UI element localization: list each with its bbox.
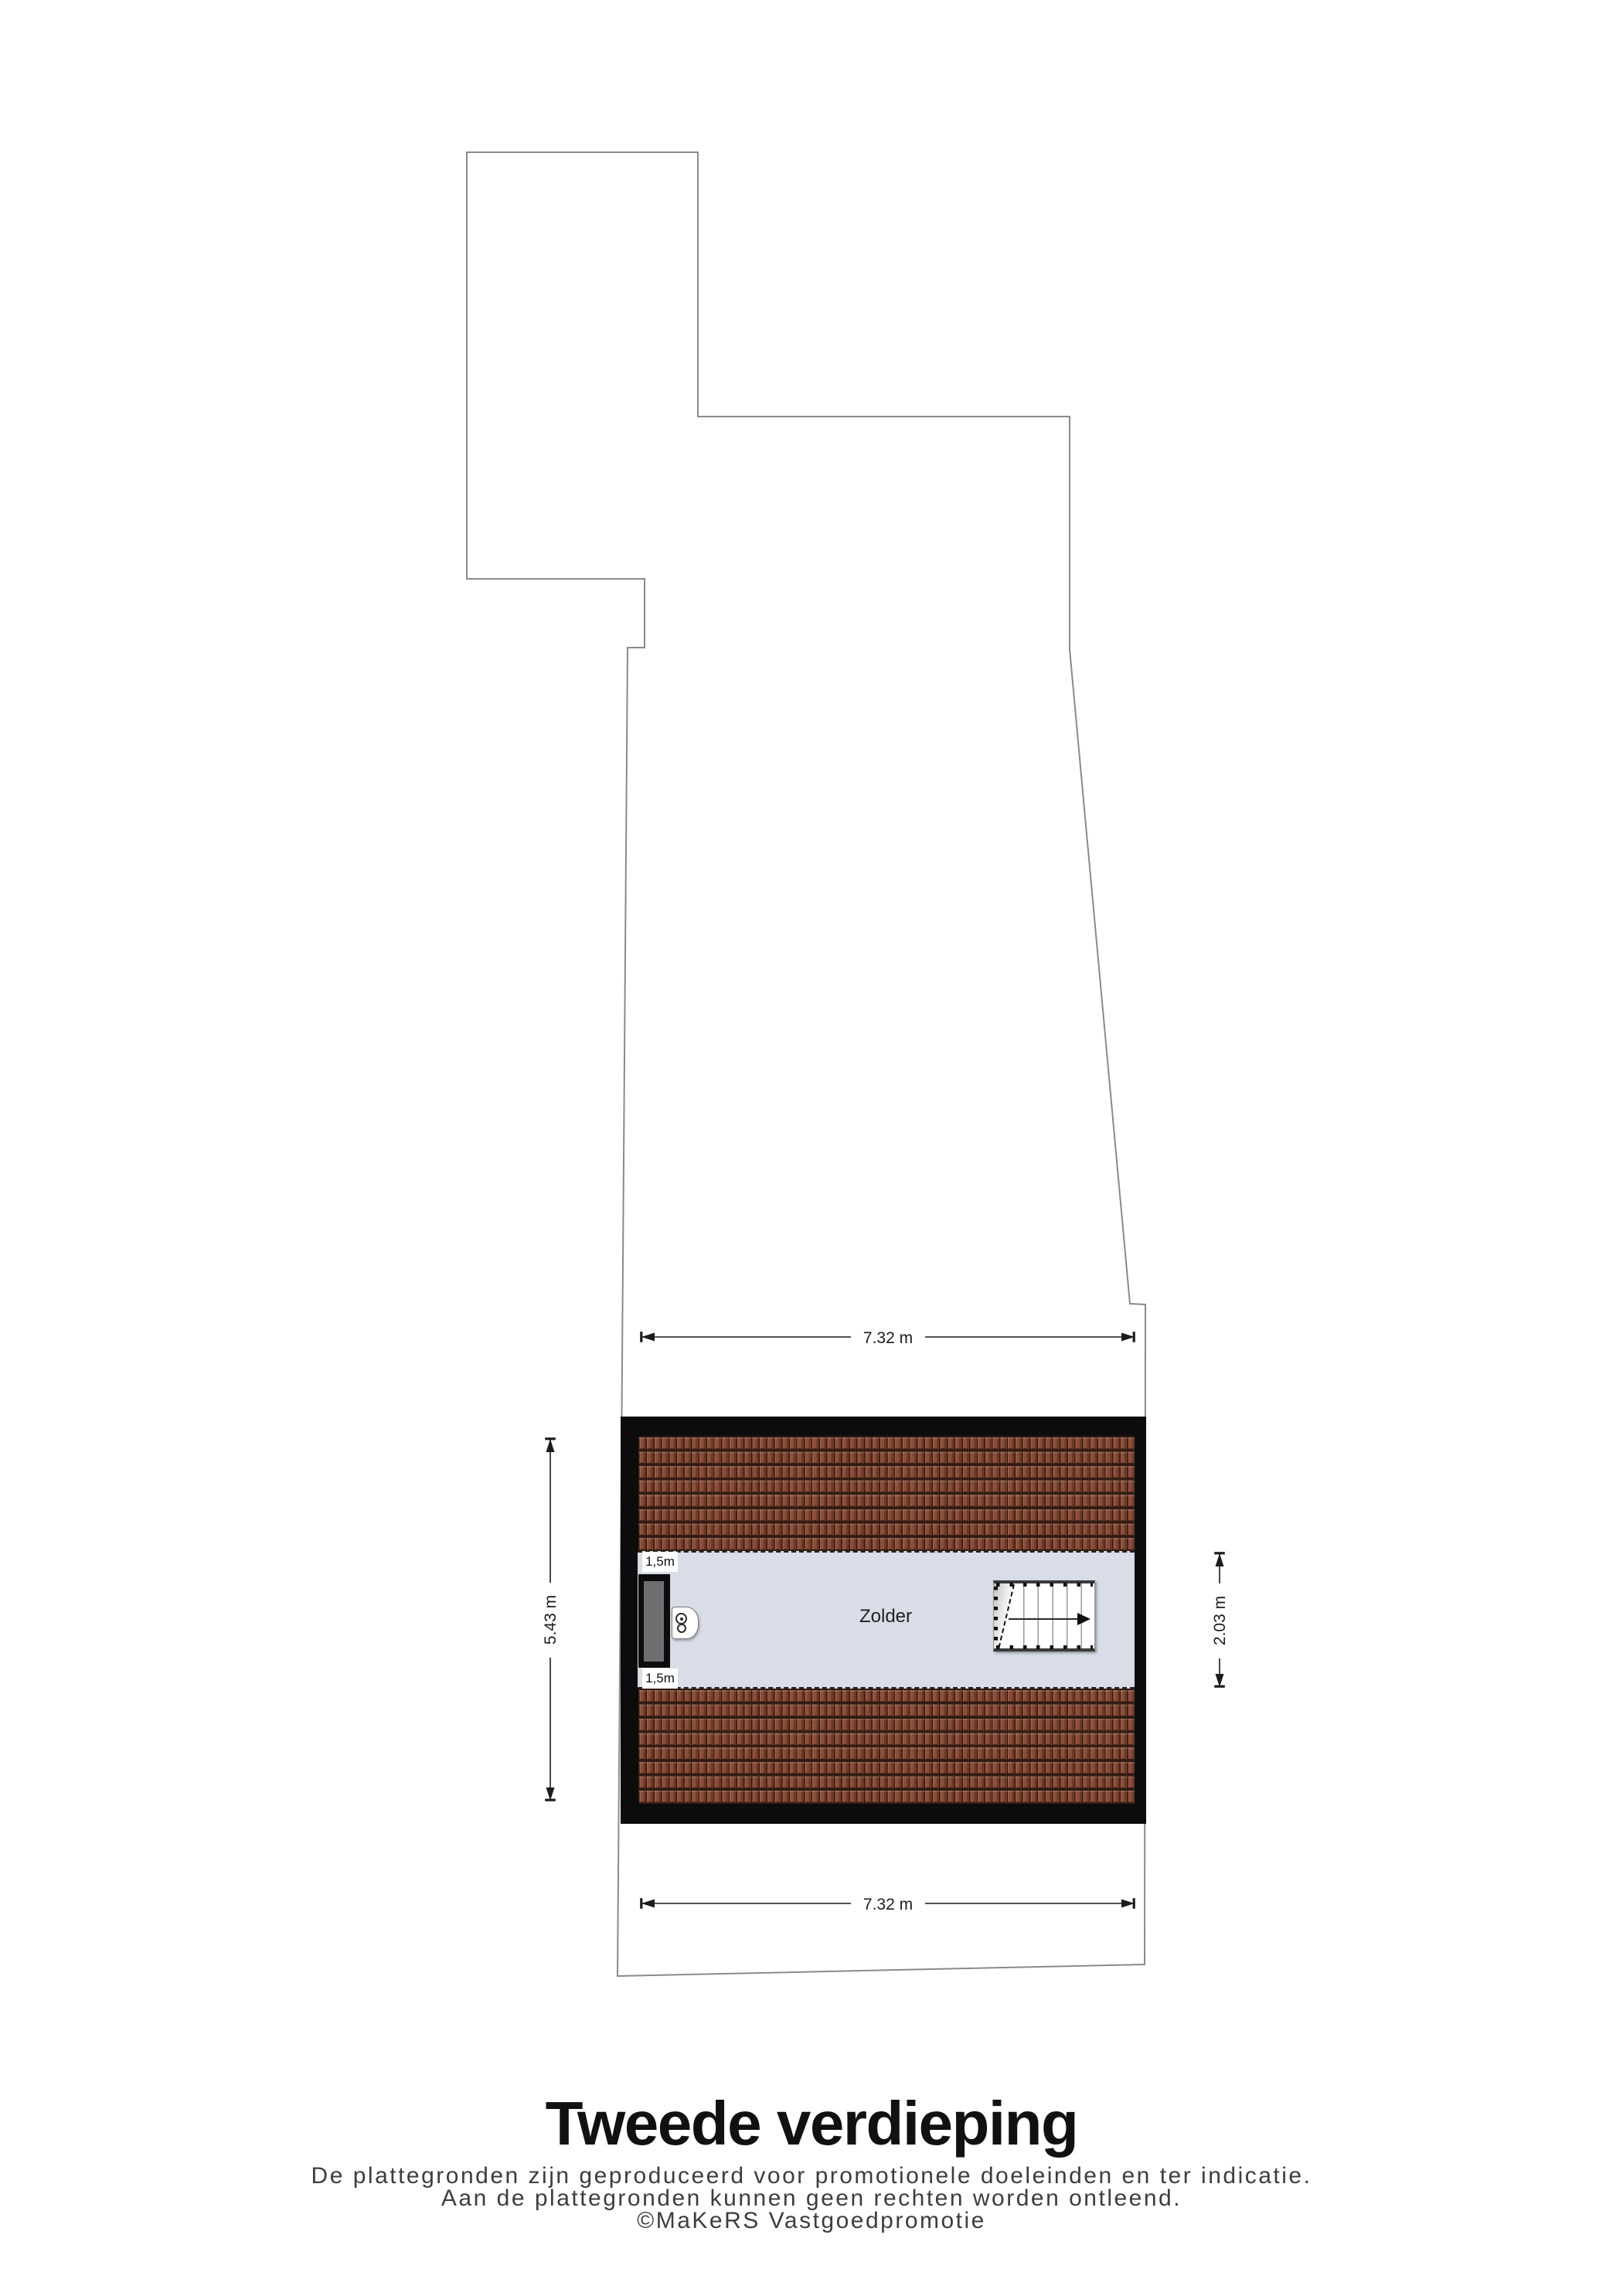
plot-outline-and-dimensions: 7.32 m 7.32 m 5.43 m 2.03 m [0,0,1623,2296]
disclaimer: De plattegronden zijn geproduceerd voor … [0,2165,1623,2232]
dimension-depth-right: 2.03 m [1209,1553,1230,1687]
dimension-label-right: 2.03 m [1211,1596,1229,1645]
room-label: Zolder [793,1606,978,1628]
disclaimer-line-2: Aan de plattegronden kunnen geen rechten… [0,2187,1623,2209]
dimension-width-bottom: 7.32 m [641,1893,1135,1913]
stairs-ticks-top [996,1583,1093,1587]
headroom-label-top: 1,5m [642,1552,678,1572]
dimension-label-left: 5.43 m [542,1595,560,1645]
dimension-label-bottom: 7.32 m [863,1896,913,1913]
stairs-ticks-bottom [996,1645,1093,1649]
disclaimer-line-3: ©MaKeRS Vastgoedpromotie [0,2209,1623,2232]
floorplan-page: { "title": { "text": "Tweede verdieping"… [0,0,1623,2296]
dimension-height-left: 5.43 m [539,1438,560,1801]
disclaimer-line-1: De plattegronden zijn geproduceerd voor … [0,2165,1623,2187]
stairs-ticks-left [994,1587,998,1645]
dormer-window-glass [644,1581,664,1662]
direction-arrow-icon [1077,1613,1091,1625]
stairs-direction-line [1009,1618,1080,1620]
headroom-label-bottom: 1,5m [642,1668,678,1689]
boiler-top-dot [680,1617,683,1621]
dimension-label-top: 7.32 m [863,1329,913,1347]
page-title: Tweede verdieping [0,2091,1623,2156]
staircase-icon [993,1580,1095,1651]
dimension-width-top: 7.32 m [641,1326,1135,1347]
roof-tiles-bottom [638,1689,1135,1804]
roof-tiles-top [638,1436,1135,1551]
boiler-icon [672,1607,699,1639]
boiler-bottom-circle [677,1624,686,1633]
